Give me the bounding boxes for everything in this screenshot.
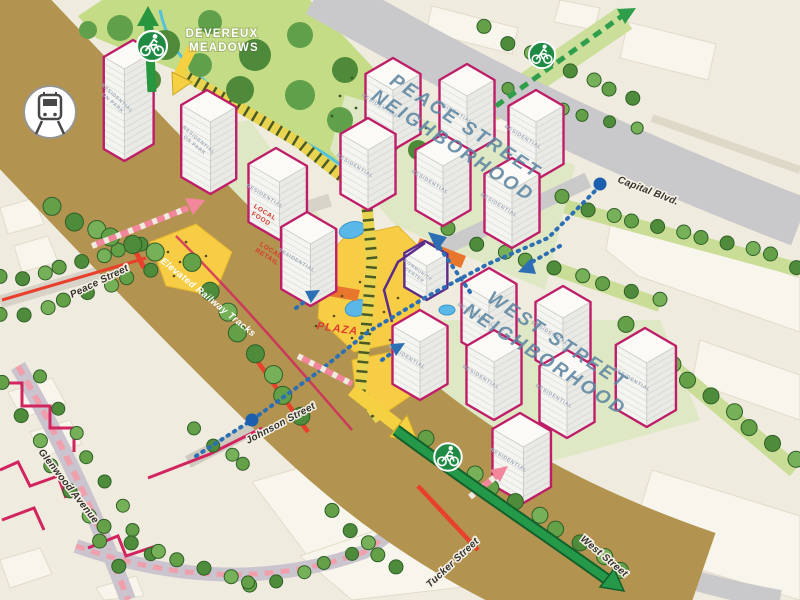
tree-icon: [93, 534, 107, 548]
tree-icon: [596, 277, 610, 291]
tree-icon: [626, 91, 640, 105]
tree-icon: [587, 73, 601, 87]
tree-icon: [52, 260, 66, 274]
tree-icon: [607, 209, 621, 223]
person-speck: [341, 295, 344, 298]
person-speck: [389, 339, 392, 342]
tree-icon: [602, 82, 616, 96]
tree-icon: [576, 269, 590, 283]
park-tree-icon: [285, 80, 315, 110]
tree-icon: [65, 213, 83, 231]
tree-icon: [188, 422, 201, 435]
courtyard-pond: [439, 305, 455, 315]
tree-icon: [17, 308, 31, 322]
park-tree-icon: [332, 57, 358, 83]
park-speck: [355, 107, 358, 110]
tree-icon: [98, 475, 111, 488]
park-tree-icon: [107, 15, 133, 41]
bike-icon: [434, 443, 462, 471]
tree-icon: [694, 231, 708, 245]
transit-stop-dot: [246, 414, 259, 427]
tree-icon: [75, 255, 89, 269]
tree-icon: [112, 559, 126, 573]
tree-icon: [70, 427, 83, 440]
tree-icon: [746, 242, 760, 256]
tree-icon: [555, 189, 569, 203]
tree-icon: [618, 316, 634, 332]
tree-icon: [270, 575, 283, 588]
tree-icon: [144, 263, 158, 277]
transit-stop-dot: [594, 178, 607, 191]
tree-icon: [236, 457, 249, 470]
tree-icon: [126, 524, 139, 537]
park-tree-icon: [226, 76, 254, 104]
tree-icon: [547, 261, 561, 275]
tree-icon: [265, 366, 283, 384]
tree-icon: [361, 536, 375, 550]
tree-icon: [0, 375, 9, 389]
park-label-line2: MEADOWS: [189, 42, 259, 54]
tree-icon: [741, 420, 757, 436]
tree-icon: [477, 19, 491, 33]
person-speck: [179, 261, 182, 264]
park-label-line1: DEVEREUX: [186, 28, 259, 40]
tree-icon: [501, 37, 515, 51]
tree-icon: [631, 122, 643, 134]
person-speck: [359, 281, 362, 284]
tree-icon: [651, 220, 665, 234]
park-tree-icon: [287, 22, 313, 48]
site-plan-map: RESIDENTIALON PARKRESIDENTIALON PARKRESI…: [0, 0, 800, 600]
tree-icon: [389, 560, 403, 574]
building-peace-tower-4: RESIDENTIAL: [335, 118, 395, 210]
tree-icon: [624, 284, 638, 298]
tree-icon: [52, 402, 65, 415]
tree-icon: [765, 435, 781, 451]
tree-icon: [226, 448, 239, 461]
tree-icon: [625, 214, 639, 228]
tree-icon: [41, 301, 55, 315]
tree-icon: [80, 451, 93, 464]
tree-icon: [146, 243, 164, 261]
tree-icon: [343, 524, 357, 538]
person-speck: [397, 297, 400, 300]
tree-icon: [170, 553, 184, 567]
park-tree-icon: [79, 21, 97, 39]
tree-icon: [325, 503, 339, 517]
tree-icon: [183, 253, 201, 271]
person-speck: [167, 251, 170, 254]
tree-icon: [43, 197, 61, 215]
tree-icon: [720, 236, 734, 250]
person-speck: [205, 255, 208, 258]
tree-icon: [124, 236, 142, 254]
tree-icon: [246, 345, 264, 363]
tree-icon: [581, 203, 595, 217]
tree-icon: [677, 225, 691, 239]
tree-icon: [197, 561, 211, 575]
tree-icon: [532, 507, 548, 523]
tree-icon: [33, 434, 47, 448]
tree-icon: [224, 570, 238, 584]
tree-icon: [470, 237, 484, 251]
tree-icon: [680, 372, 696, 388]
tree-icon: [56, 293, 70, 307]
tree-icon: [703, 388, 719, 404]
tree-icon: [346, 547, 359, 560]
train-icon: [24, 86, 76, 138]
tree-icon: [764, 247, 778, 261]
bike-icon: [137, 31, 167, 61]
park-speck: [339, 95, 342, 98]
masterplan-svg: RESIDENTIALON PARKRESIDENTIALON PARKRESI…: [0, 0, 800, 600]
tree-icon: [604, 116, 616, 128]
tree-icon: [371, 548, 385, 562]
person-speck: [333, 315, 336, 318]
tree-icon: [16, 272, 30, 286]
tree-icon: [97, 249, 111, 263]
tree-icon: [727, 404, 743, 420]
park-speck: [331, 115, 334, 118]
park-speck: [351, 77, 354, 80]
tree-icon: [34, 370, 47, 383]
person-speck: [185, 241, 188, 244]
tree-icon: [124, 536, 138, 550]
tree-icon: [788, 451, 800, 467]
tree-icon: [317, 557, 330, 570]
tree-icon: [14, 409, 28, 423]
tree-icon: [576, 109, 588, 121]
building-residential-on-park-2: RESIDENTIALON PARK: [177, 90, 237, 194]
bike-icon: [529, 42, 555, 68]
tree-icon: [97, 519, 111, 533]
tree-icon: [653, 292, 667, 306]
tree-icon: [790, 261, 800, 275]
tree-icon: [298, 566, 311, 579]
tree-icon: [563, 64, 577, 78]
tree-icon: [151, 544, 165, 558]
tree-icon: [116, 499, 129, 512]
tree-icon: [242, 576, 255, 589]
tree-icon: [38, 266, 52, 280]
person-speck: [383, 311, 386, 314]
